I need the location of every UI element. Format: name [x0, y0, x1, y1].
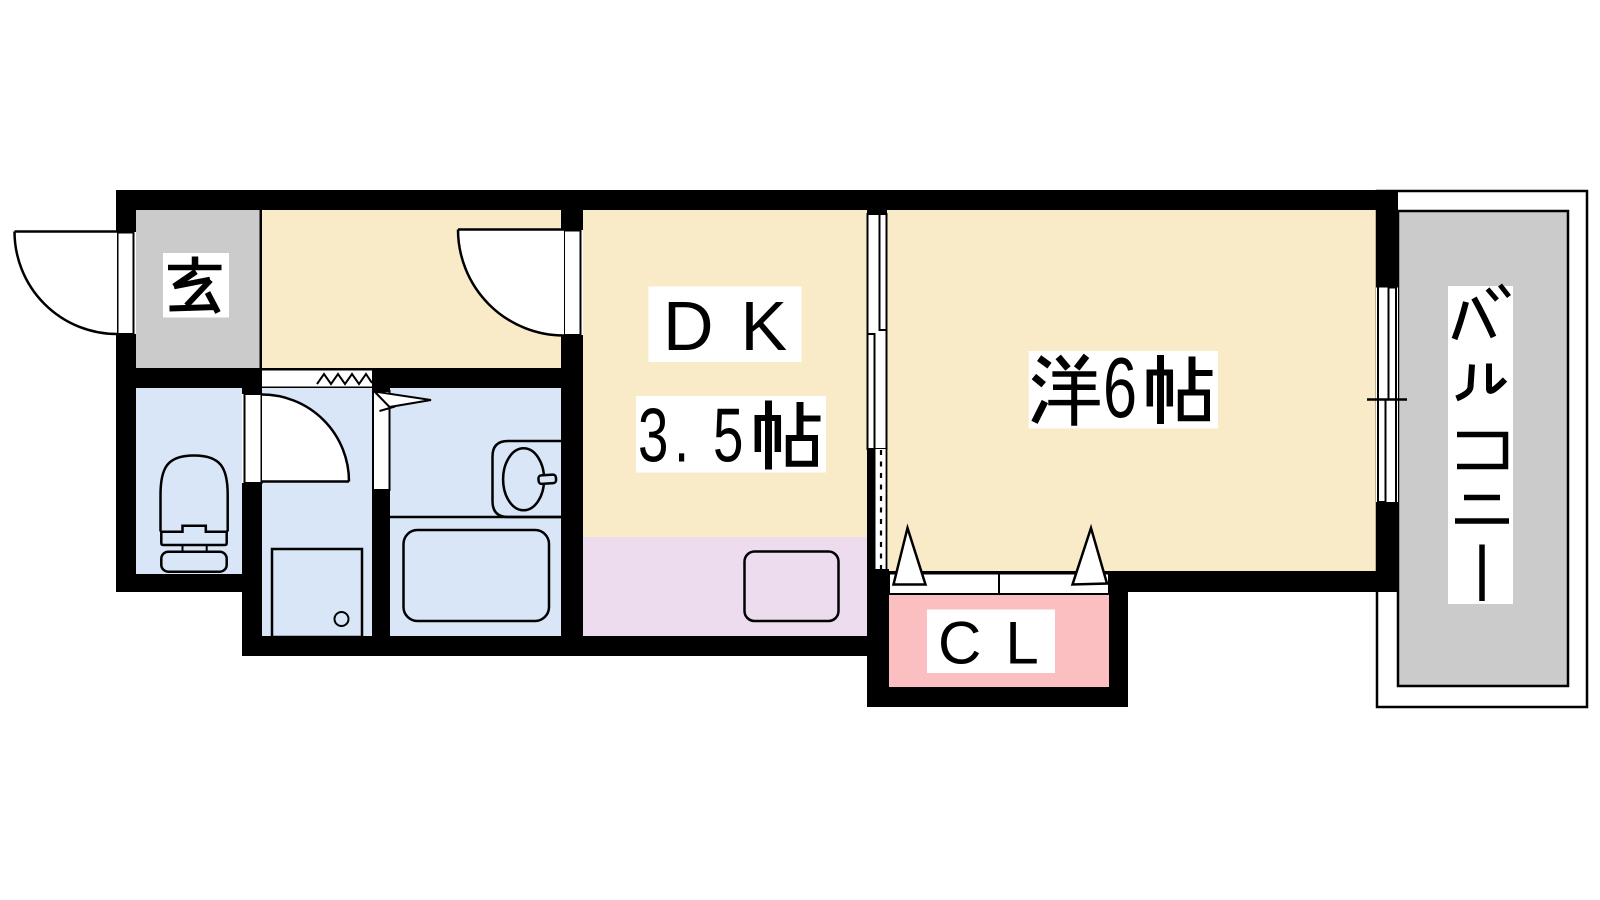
svg-text:5: 5: [713, 394, 743, 479]
svg-text:6: 6: [1103, 340, 1137, 435]
svg-text:CL: CL: [938, 610, 1063, 677]
svg-text:3: 3: [638, 394, 668, 479]
svg-text:DK: DK: [663, 287, 814, 365]
svg-text:.: .: [674, 394, 689, 479]
